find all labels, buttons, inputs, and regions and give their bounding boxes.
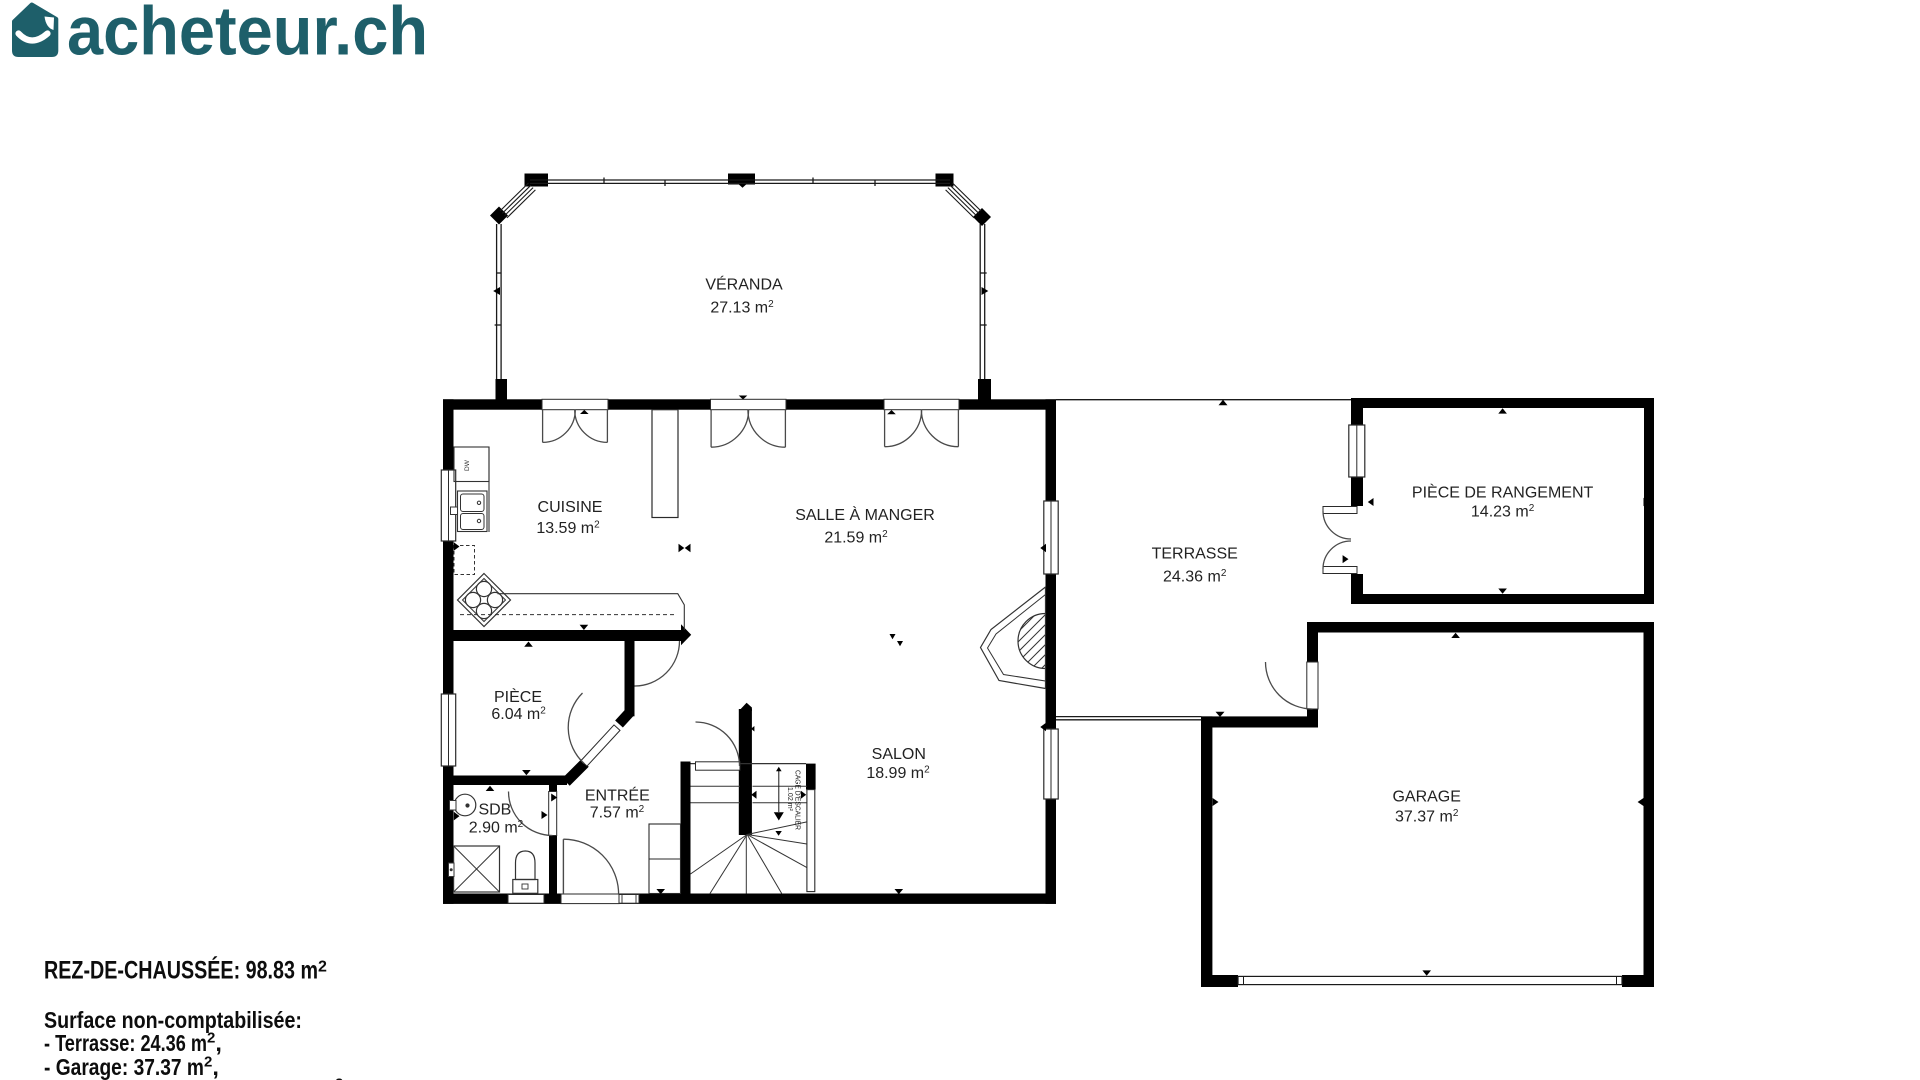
svg-text:24.36 m2: 24.36 m2: [1163, 568, 1227, 586]
svg-text:1.02 m²: 1.02 m²: [786, 787, 795, 812]
svg-text:acheteur.ch: acheteur.ch: [67, 0, 428, 70]
svg-text:2.90 m2: 2.90 m2: [469, 819, 524, 837]
svg-text:CUISINE: CUISINE: [538, 499, 603, 516]
svg-text:PIÈCE DE RANGEMENT: PIÈCE DE RANGEMENT: [1412, 483, 1594, 502]
svg-text:27.13 m2: 27.13 m2: [710, 299, 774, 317]
svg-text:7.57 m2: 7.57 m2: [590, 804, 645, 822]
svg-text:PIÈCE: PIÈCE: [494, 687, 542, 706]
svg-text:TERRASSE: TERRASSE: [1152, 546, 1238, 563]
svg-text:14.23 m2: 14.23 m2: [1471, 503, 1535, 521]
svg-text:GARAGE: GARAGE: [1392, 789, 1460, 806]
svg-text:ENTRÉE: ENTRÉE: [585, 786, 650, 805]
svg-text:18.99 m2: 18.99 m2: [866, 765, 930, 783]
svg-text:SALLE À MANGER: SALLE À MANGER: [795, 505, 935, 524]
svg-text:13.59 m2: 13.59 m2: [536, 520, 600, 538]
svg-text:VÉRANDA: VÉRANDA: [705, 274, 783, 293]
svg-text:37.37 m2: 37.37 m2: [1395, 808, 1459, 826]
svg-text:- Terrasse: 24.36 m2,: - Terrasse: 24.36 m2,: [44, 1029, 222, 1056]
svg-text:SDB: SDB: [478, 802, 511, 819]
svg-text:- Cage d'escalier: 1.02 m2,: - Cage d'escalier: 1.02 m2,: [44, 1076, 350, 1080]
svg-text:6.04 m2: 6.04 m2: [491, 706, 546, 724]
svg-text:SALON: SALON: [872, 746, 926, 763]
svg-text:DW: DW: [464, 459, 471, 471]
svg-text:REZ-DE-CHAUSSÉE: 98.83 m2: REZ-DE-CHAUSSÉE: 98.83 m2: [44, 956, 327, 985]
svg-text:21.59 m2: 21.59 m2: [824, 529, 888, 547]
